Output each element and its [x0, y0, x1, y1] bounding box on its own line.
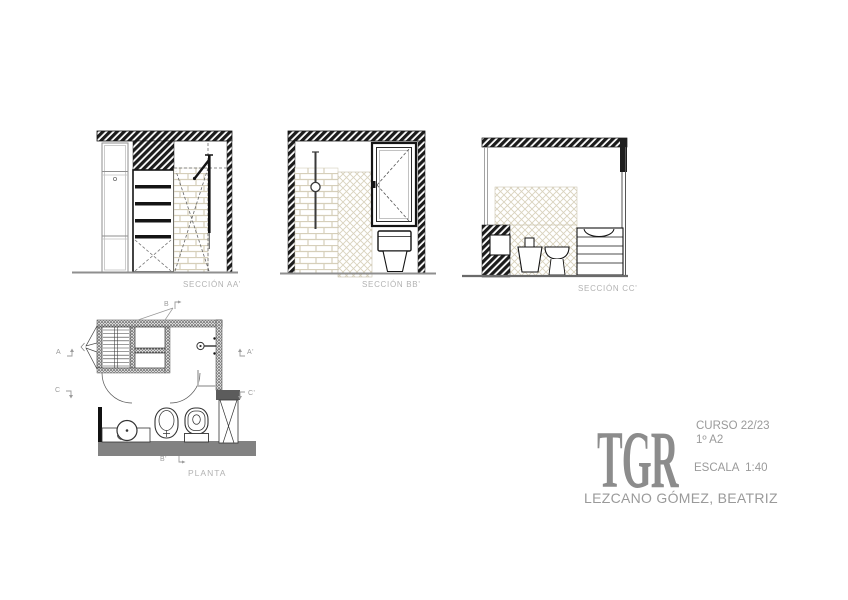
cut-wall-hatching: [482, 138, 627, 172]
course-line: CURSO 22/23: [696, 419, 770, 433]
cut-marker-c-prime: C': [248, 390, 255, 397]
group-line: 1º A2: [696, 433, 770, 447]
cut-arrow-up-icon: [237, 348, 247, 358]
folding-door-plan: [81, 326, 97, 369]
author-name: LEZCANO GÓMEZ, BEATRIZ: [584, 490, 778, 506]
cut-marker-b: B: [164, 301, 169, 308]
cut-wall-base: [482, 225, 510, 277]
cut-marker-b-prime: B': [160, 456, 167, 463]
scale-label: ESCALA 1:40: [694, 462, 768, 474]
cut-marker-a: A: [56, 349, 61, 356]
section-aa-drawing: [72, 125, 240, 283]
shower-curb: [198, 370, 216, 386]
section-aa-caption: SECCIÓN AA': [183, 280, 241, 289]
mosaic-tiling: [338, 172, 372, 277]
section-cc-drawing: [462, 125, 642, 285]
section-cc-caption: SECCIÓN CC': [578, 284, 637, 293]
cut-arrow-down-icon: [237, 390, 247, 400]
cut-arrow-down-icon: [64, 389, 74, 399]
tgr-logo: TGR: [597, 419, 678, 501]
toilet-elevation: [378, 231, 411, 272]
drawing-sheet: A A' C C' B B' SECCIÓN AA' SECCIÓN BB' S…: [0, 0, 848, 600]
section-bb-caption: SECCIÓN BB': [362, 280, 421, 289]
cut-arrow-right-icon: [173, 300, 183, 310]
wardrobe-elevation: [102, 143, 128, 272]
hinge-icon: [373, 181, 376, 188]
shower-room-elevation: [174, 143, 227, 272]
cut-arrow-right-icon: [177, 455, 187, 465]
window-elevation: [372, 143, 416, 226]
bidet-plan: [155, 408, 178, 438]
left-wall-lines: [485, 147, 488, 233]
door-swing-arcs: [102, 373, 200, 403]
toilet-plan: [185, 408, 209, 442]
vanity-elevation: [577, 228, 623, 275]
wall-stub: [98, 407, 102, 442]
cut-marker-c: C: [55, 387, 61, 394]
door-leaf-lines: [135, 308, 173, 321]
cut-arrow-up-icon: [65, 348, 75, 358]
shelving-elevation: [133, 170, 174, 272]
course-block: CURSO 22/23 1º A2: [696, 419, 770, 448]
cut-marker-a-prime: A': [247, 349, 254, 356]
plan-caption: PLANTA: [188, 468, 226, 478]
section-bb-drawing: [280, 125, 436, 283]
washing-machine-plan: [102, 421, 150, 443]
